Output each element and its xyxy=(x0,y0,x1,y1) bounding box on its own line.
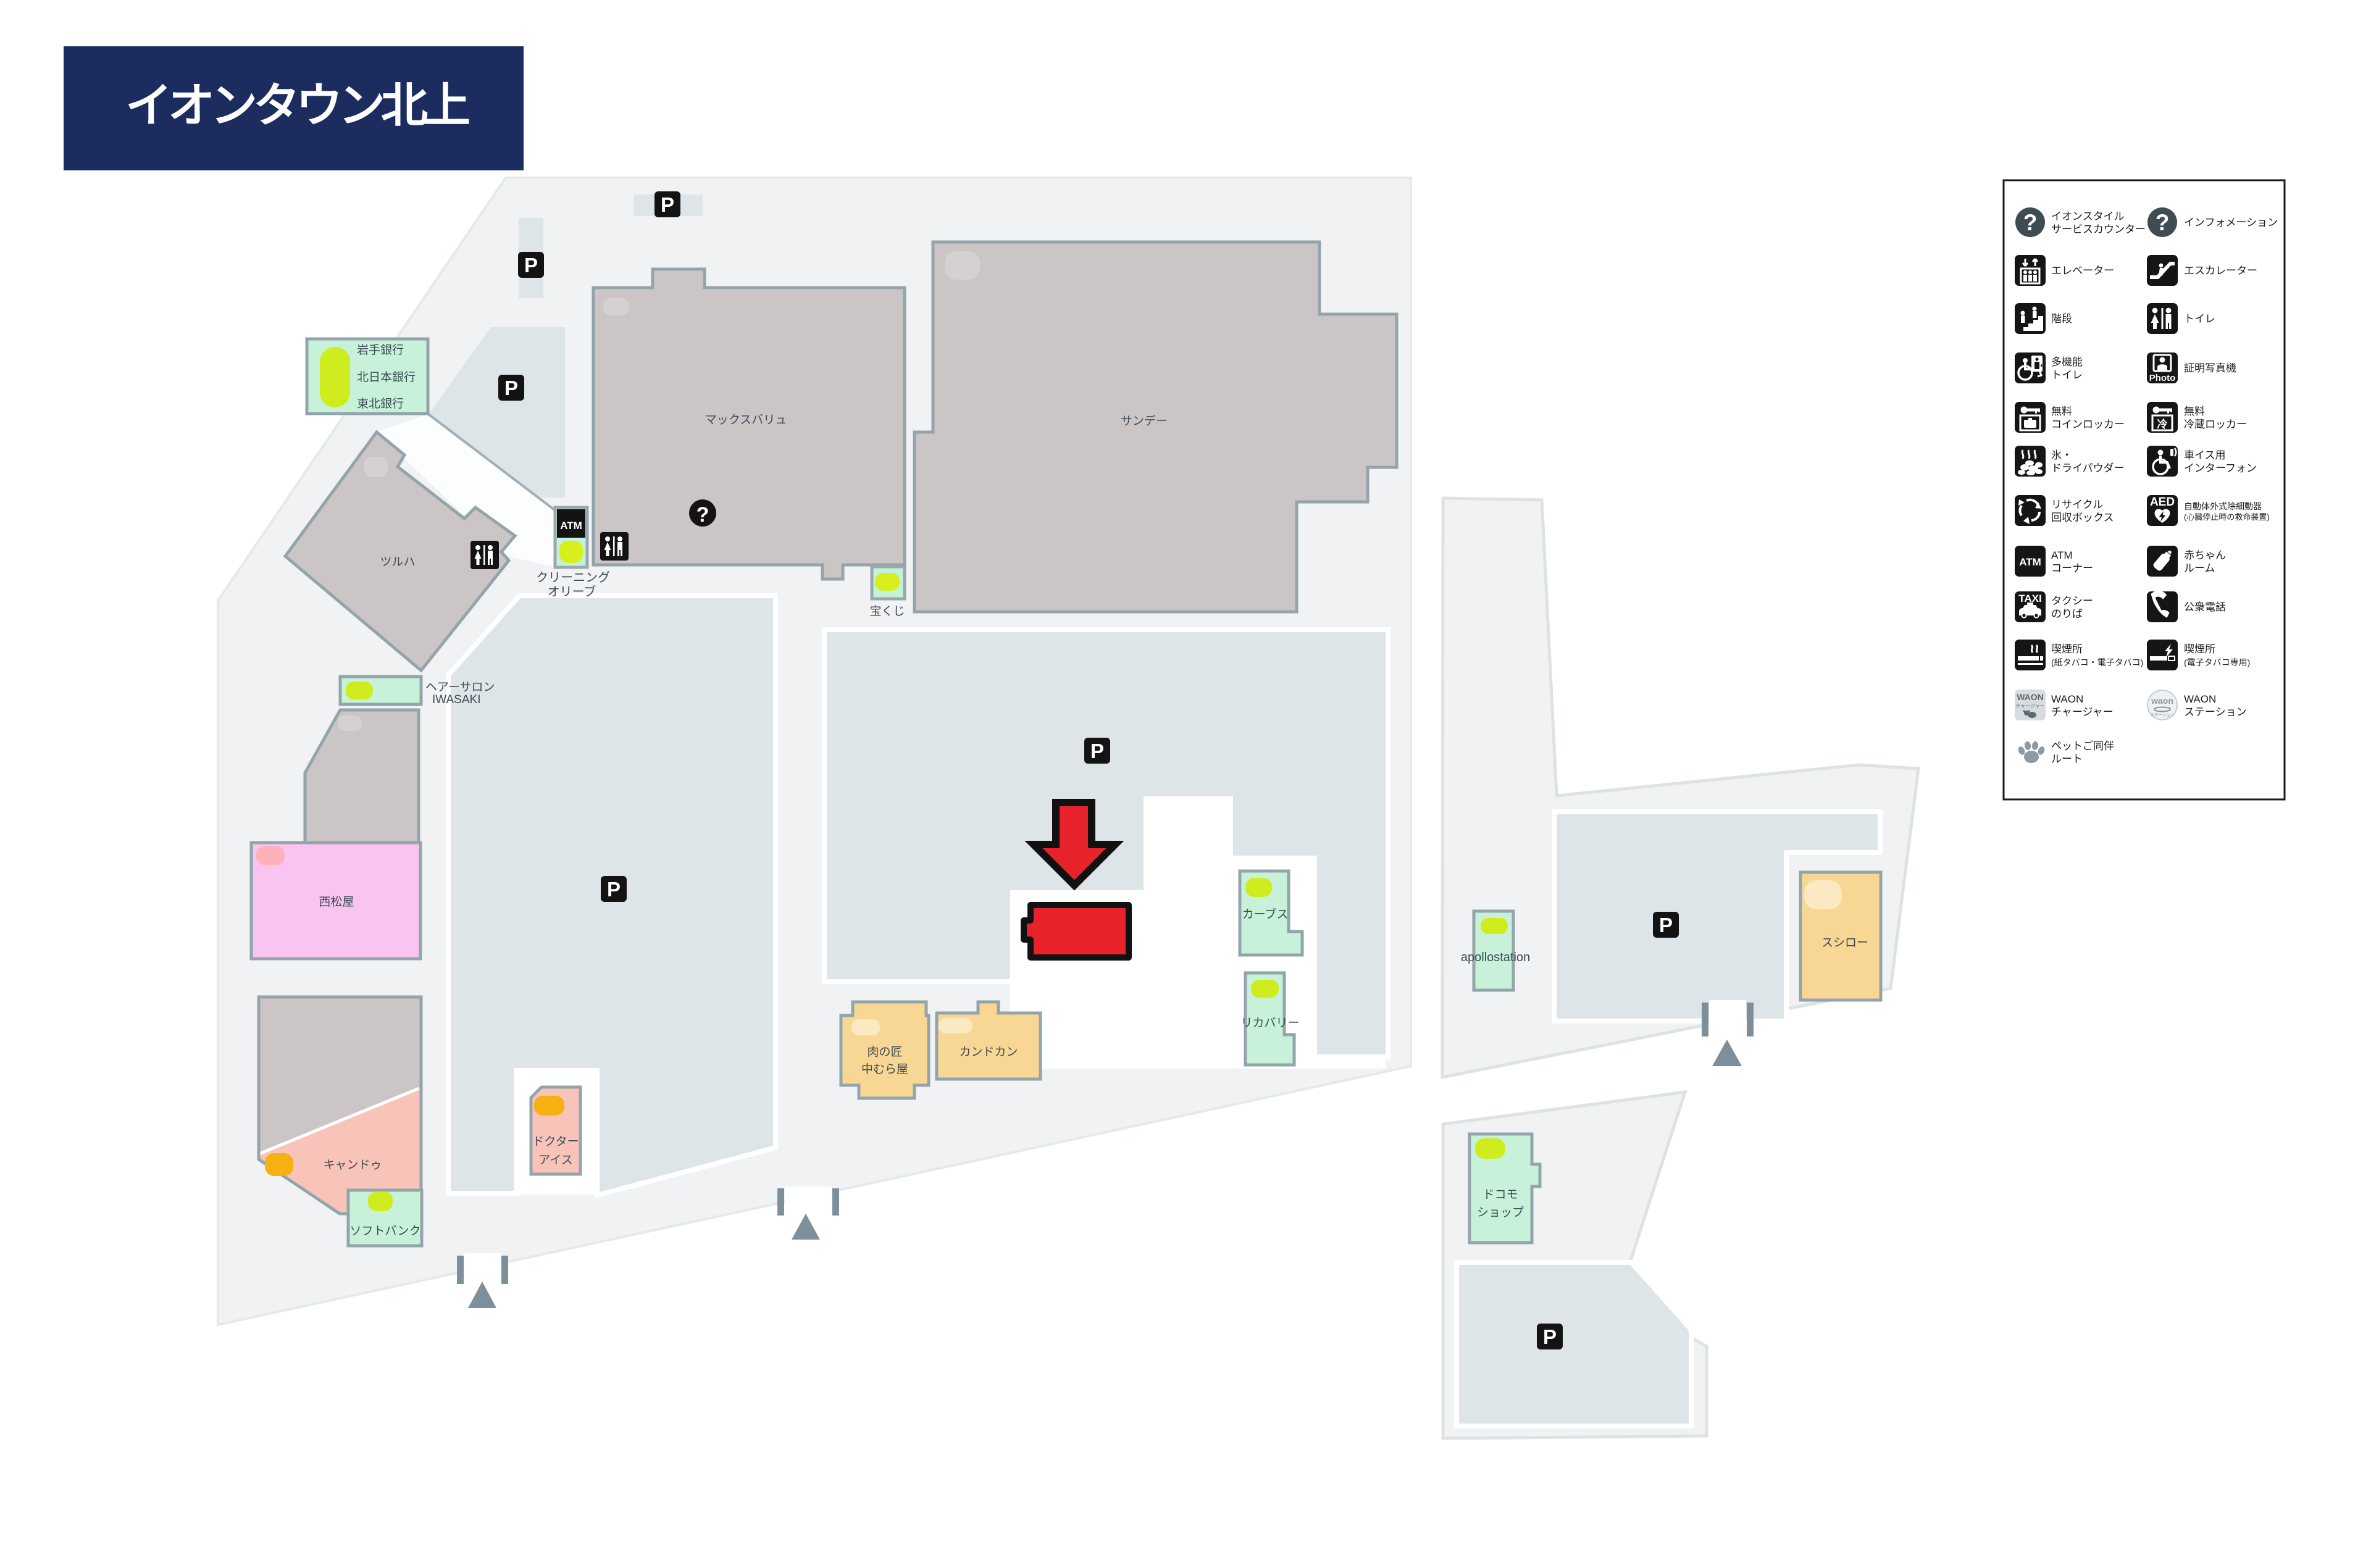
svg-text:チャージャー: チャージャー xyxy=(2051,706,2114,718)
svg-text:オリーブ: オリーブ xyxy=(548,584,596,599)
svg-text:ショップ: ショップ xyxy=(1477,1206,1524,1219)
svg-text:ツルハ: ツルハ xyxy=(380,556,415,569)
svg-text:ソフトバンク: ソフトバンク xyxy=(350,1224,421,1238)
svg-text:ペットご同伴: ペットご同伴 xyxy=(2051,740,2114,752)
svg-text:喫煙所: 喫煙所 xyxy=(2184,643,2215,655)
svg-text:ドクター: ドクター xyxy=(532,1135,579,1148)
svg-text:サービスカウンター: サービスカウンター xyxy=(2051,223,2146,235)
svg-text:アイス: アイス xyxy=(538,1154,572,1167)
svg-text:WAON: WAON xyxy=(2051,693,2083,705)
svg-text:カンドカン: カンドカン xyxy=(959,1046,1018,1059)
svg-text:WAON: WAON xyxy=(2184,693,2216,705)
svg-text:中むら屋: 中むら屋 xyxy=(861,1062,908,1076)
svg-text:自動体外式除細動器: 自動体外式除細動器 xyxy=(2184,501,2262,511)
svg-text:喫煙所: 喫煙所 xyxy=(2051,643,2083,655)
svg-text:IWASAKI: IWASAKI xyxy=(432,693,480,706)
svg-text:氷・: 氷・ xyxy=(2051,449,2072,461)
svg-text:(心臓停止時の救命装置): (心臓停止時の救命装置) xyxy=(2184,512,2270,522)
svg-text:apollostation: apollostation xyxy=(1461,951,1530,964)
svg-text:ルート: ルート xyxy=(2051,753,2083,765)
svg-text:公衆電話: 公衆電話 xyxy=(2184,601,2226,613)
svg-text:車イス用: 車イス用 xyxy=(2184,449,2226,461)
svg-text:イオンタウン北上: イオンタウン北上 xyxy=(125,80,469,132)
svg-text:?: ? xyxy=(696,503,709,527)
svg-text:ルーム: ルーム xyxy=(2184,562,2215,574)
svg-text:タクシー: タクシー xyxy=(2051,595,2093,607)
svg-text:インフォメーション: インフォメーション xyxy=(2184,217,2278,228)
svg-text:のりば: のりば xyxy=(2051,608,2083,620)
svg-text:リサイクル: リサイクル xyxy=(2051,499,2103,511)
svg-text:西松屋: 西松屋 xyxy=(319,895,354,909)
svg-text:リカバリー: リカバリー xyxy=(1240,1017,1299,1030)
svg-text:ATM: ATM xyxy=(2051,549,2073,561)
svg-text:宝くじ: 宝くじ xyxy=(869,604,905,618)
svg-text:コーナー: コーナー xyxy=(2051,562,2093,574)
svg-text:ドコモ: ドコモ xyxy=(1482,1188,1518,1201)
svg-text:(電子タバコ専用): (電子タバコ専用) xyxy=(2184,657,2250,667)
svg-text:クリーニング: クリーニング xyxy=(536,570,610,585)
svg-text:エスカレーター: エスカレーター xyxy=(2184,265,2257,277)
svg-text:マックスバリュ: マックスバリュ xyxy=(705,413,787,427)
svg-text:東北銀行: 東北銀行 xyxy=(357,397,404,411)
svg-text:無料: 無料 xyxy=(2184,406,2205,417)
svg-text:インターフォン: インターフォン xyxy=(2184,462,2257,474)
svg-text:ドライパウダー: ドライパウダー xyxy=(2051,462,2125,474)
svg-text:キャンドゥ: キャンドゥ xyxy=(323,1159,382,1172)
svg-text:ヘアーサロン: ヘアーサロン xyxy=(425,681,495,694)
svg-text:ステーション: ステーション xyxy=(2184,706,2247,718)
svg-text:カーブス: カーブス xyxy=(1242,907,1289,921)
svg-text:ATM: ATM xyxy=(560,520,582,532)
svg-text:証明写真機: 証明写真機 xyxy=(2184,362,2236,374)
svg-text:階段: 階段 xyxy=(2051,313,2072,325)
svg-text:赤ちゃん: 赤ちゃん xyxy=(2184,549,2226,561)
svg-text:トイレ: トイレ xyxy=(2184,313,2215,325)
svg-text:多機能: 多機能 xyxy=(2051,356,2083,368)
svg-text:トイレ: トイレ xyxy=(2051,369,2083,381)
svg-text:サンデー: サンデー xyxy=(1121,414,1168,428)
svg-text:(紙タバコ・電子タバコ): (紙タバコ・電子タバコ) xyxy=(2051,657,2143,667)
svg-text:北日本銀行: 北日本銀行 xyxy=(357,370,416,384)
svg-text:イオンスタイル: イオンスタイル xyxy=(2051,211,2125,222)
svg-text:肉の匠: 肉の匠 xyxy=(867,1045,902,1059)
svg-text:岩手銀行: 岩手銀行 xyxy=(357,343,404,357)
svg-text:スシロー: スシロー xyxy=(1821,936,1868,949)
svg-text:コインロッカー: コインロッカー xyxy=(2051,419,2125,430)
svg-text:冷蔵ロッカー: 冷蔵ロッカー xyxy=(2184,419,2247,430)
svg-text:無料: 無料 xyxy=(2051,406,2072,417)
svg-text:回収ボックス: 回収ボックス xyxy=(2051,512,2114,523)
svg-text:エレベーター: エレベーター xyxy=(2051,265,2114,277)
